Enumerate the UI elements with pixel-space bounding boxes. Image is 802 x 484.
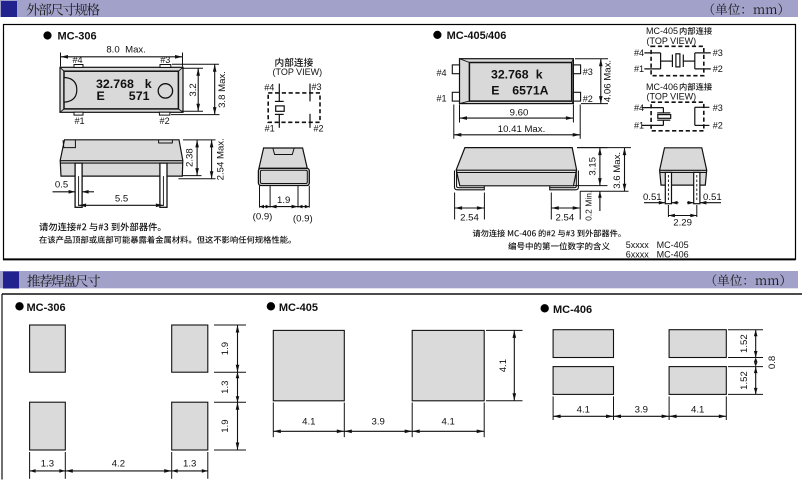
- svg-text:(0.9): (0.9): [253, 212, 273, 223]
- svg-text:3.15: 3.15: [587, 157, 598, 176]
- svg-text:9.60: 9.60: [510, 107, 529, 118]
- svg-text:#2: #2: [713, 120, 723, 130]
- svg-text:MC-406: MC-406: [646, 82, 678, 92]
- svg-text:1.9: 1.9: [220, 419, 231, 432]
- svg-text:MC-405/406: MC-405/406: [447, 30, 507, 42]
- svg-text:4.1: 4.1: [577, 405, 590, 416]
- svg-text:3.2: 3.2: [188, 83, 199, 96]
- svg-text:0.8: 0.8: [767, 356, 778, 369]
- svg-text:MC-405: MC-405: [657, 240, 689, 250]
- svg-text:6xxxx: 6xxxx: [626, 250, 650, 260]
- svg-text:#2: #2: [160, 116, 170, 126]
- svg-text:3.9: 3.9: [635, 405, 648, 416]
- svg-text:MC-405: MC-405: [646, 26, 678, 36]
- svg-text:#3: #3: [160, 55, 170, 65]
- svg-text:2.29: 2.29: [673, 218, 692, 229]
- svg-text:4.2: 4.2: [112, 458, 125, 469]
- svg-text:(TOP VIEW): (TOP VIEW): [647, 91, 697, 101]
- svg-text:4.1: 4.1: [498, 359, 509, 372]
- svg-text:Max.: Max.: [125, 44, 146, 55]
- svg-text:k: k: [536, 68, 543, 82]
- svg-text:#3: #3: [311, 82, 321, 92]
- svg-text:#1: #1: [634, 120, 644, 130]
- svg-text:4.1: 4.1: [442, 416, 455, 427]
- svg-text:#2: #2: [583, 94, 593, 104]
- svg-text:1.9: 1.9: [277, 195, 290, 206]
- svg-text:(0.9): (0.9): [293, 214, 313, 225]
- svg-text:2.54: 2.54: [556, 213, 575, 224]
- svg-text:#1: #1: [74, 116, 84, 126]
- svg-text:6571A: 6571A: [512, 84, 548, 98]
- svg-text:(TOP VIEW): (TOP VIEW): [647, 36, 697, 46]
- svg-text:1.52: 1.52: [739, 371, 750, 390]
- svg-text:571: 571: [129, 89, 150, 103]
- svg-text:1.3: 1.3: [183, 458, 196, 469]
- svg-text:2.38: 2.38: [185, 148, 196, 167]
- svg-text:#3: #3: [713, 48, 723, 58]
- svg-text:4.1: 4.1: [302, 416, 315, 427]
- svg-text:#3: #3: [583, 67, 593, 77]
- svg-text:E: E: [491, 84, 499, 98]
- svg-text:5.5: 5.5: [115, 193, 128, 204]
- svg-text:MC-306: MC-306: [58, 31, 97, 43]
- svg-text:MC-405: MC-405: [279, 302, 318, 314]
- svg-text:3.6 Max.: 3.6 Max.: [612, 152, 623, 189]
- svg-text:5xxxx: 5xxxx: [626, 240, 650, 250]
- svg-text:#4: #4: [634, 103, 644, 113]
- svg-text:1.3: 1.3: [220, 381, 231, 394]
- svg-text:2.54 Max.: 2.54 Max.: [216, 138, 227, 180]
- svg-text:1.52: 1.52: [739, 334, 750, 353]
- svg-text:#4: #4: [436, 68, 446, 78]
- svg-text:#4: #4: [634, 48, 644, 58]
- svg-text:32.768: 32.768: [491, 68, 529, 82]
- svg-text:3.9: 3.9: [372, 416, 385, 427]
- svg-text:1.9: 1.9: [220, 342, 231, 355]
- svg-text:0.2 Min.: 0.2 Min.: [584, 191, 594, 221]
- svg-text:MC-406: MC-406: [553, 304, 592, 316]
- svg-text:E: E: [97, 89, 105, 103]
- svg-text:4.1: 4.1: [691, 405, 704, 416]
- svg-text:3.8 Max.: 3.8 Max.: [217, 71, 228, 108]
- svg-text:0.5: 0.5: [55, 179, 68, 190]
- svg-text:MC-306: MC-306: [27, 302, 66, 314]
- svg-text:#1: #1: [436, 94, 446, 104]
- svg-text:#4: #4: [264, 83, 274, 93]
- svg-text:8.0: 8.0: [106, 44, 119, 55]
- svg-text:1.3: 1.3: [41, 458, 54, 469]
- svg-text:(TOP VIEW): (TOP VIEW): [273, 67, 323, 77]
- svg-text:#1: #1: [634, 64, 644, 74]
- svg-text:2.54: 2.54: [460, 213, 479, 224]
- svg-text:MC-406: MC-406: [657, 250, 689, 260]
- svg-text:#2: #2: [313, 124, 323, 134]
- svg-text:#3: #3: [713, 103, 723, 113]
- svg-text:4.06 Max.: 4.06 Max.: [602, 60, 613, 102]
- svg-text:#4: #4: [72, 55, 82, 65]
- svg-text:#2: #2: [713, 64, 723, 74]
- svg-text:#1: #1: [265, 124, 275, 134]
- svg-text:10.41 Max.: 10.41 Max.: [498, 124, 545, 135]
